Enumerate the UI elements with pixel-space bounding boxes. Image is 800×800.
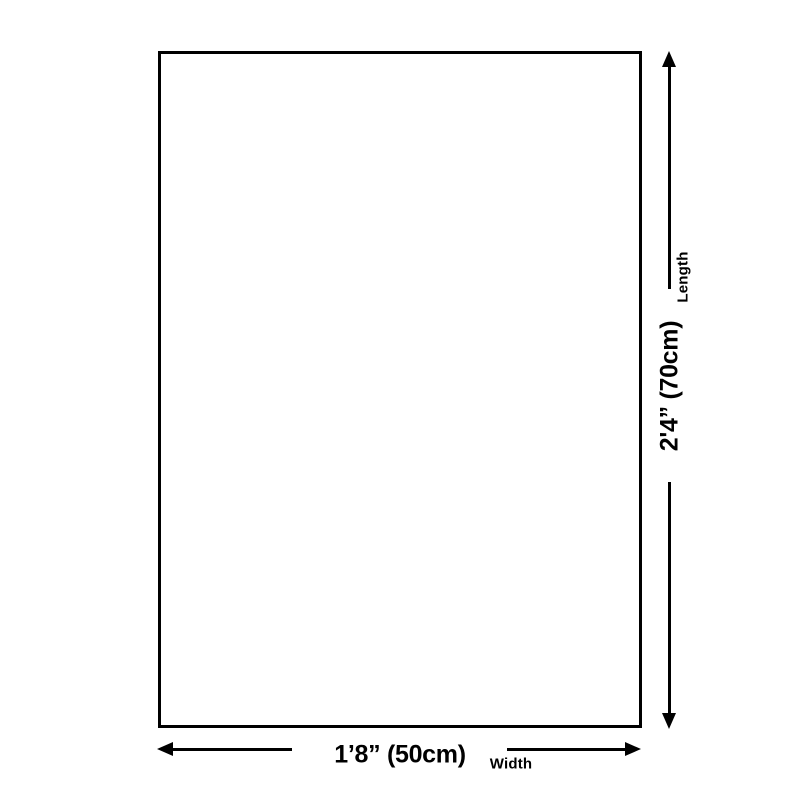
length-axis-label: Length: [675, 251, 692, 302]
product-outline-rectangle: [158, 51, 642, 728]
size-diagram: Length 2'4” (70cm) 1’8” (50cm) Width: [0, 0, 800, 800]
arrow-down-icon: [662, 713, 676, 729]
length-arrow-line-bottom: [668, 482, 671, 714]
length-arrow-line-top: [668, 64, 671, 289]
arrow-right-icon: [625, 742, 641, 756]
width-axis-label: Width: [490, 756, 533, 773]
width-arrow-line-right: [507, 748, 627, 751]
width-value-label: 1’8” (50cm): [334, 741, 466, 770]
width-arrow-line-left: [171, 748, 292, 751]
length-value-label: 2'4” (70cm): [656, 321, 685, 452]
